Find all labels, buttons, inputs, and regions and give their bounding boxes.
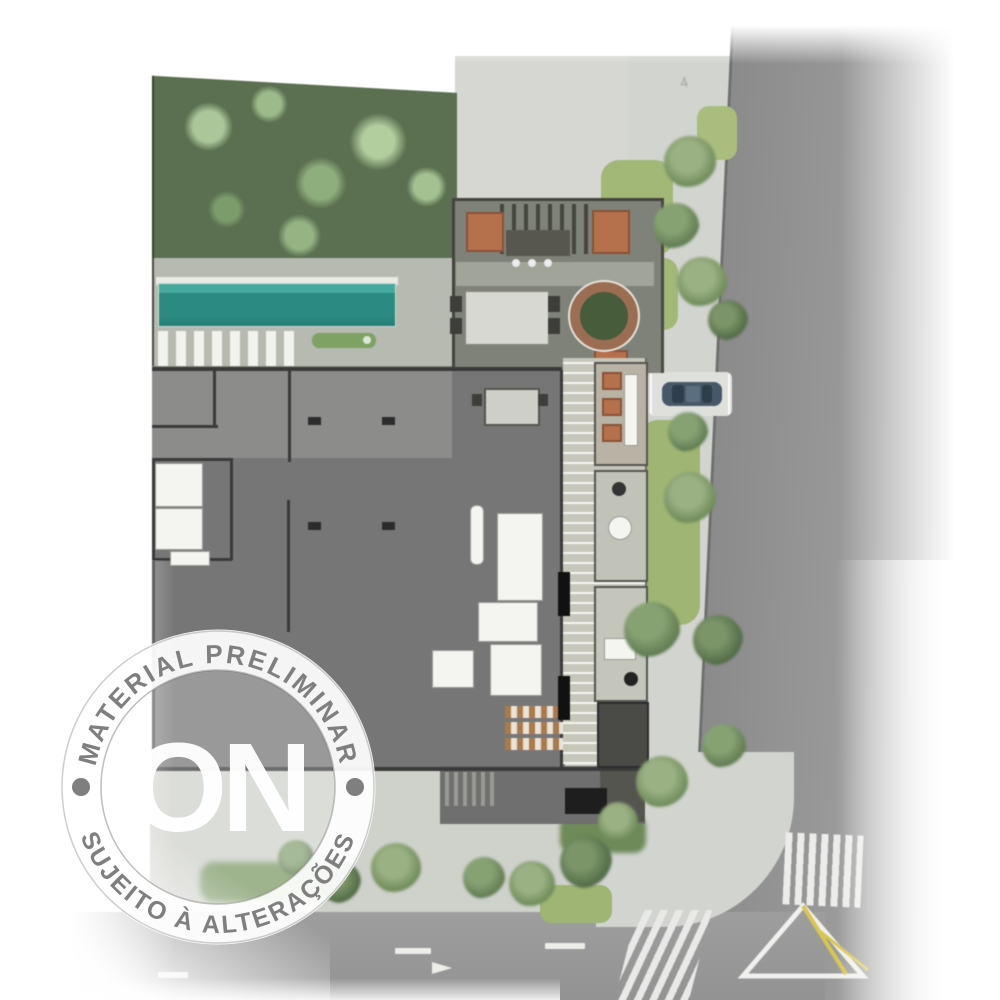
white-fixture: [155, 463, 203, 507]
car-windshield: [672, 385, 684, 403]
street-tree: [560, 836, 612, 888]
street-tree: [371, 843, 421, 893]
parking-line: [728, 374, 730, 414]
lounge-chair: [466, 212, 504, 252]
module-seat: [624, 672, 638, 686]
street-tree: [624, 602, 680, 658]
lounge-module: [594, 470, 648, 582]
white-fixture: [170, 551, 210, 566]
street-tree: [668, 412, 708, 452]
lounge-chair: [592, 210, 630, 254]
street-tree: [653, 203, 699, 249]
dining-chair: [450, 318, 462, 334]
street-tree: [463, 857, 505, 899]
parking-line: [650, 374, 652, 414]
street-tree: [664, 472, 716, 524]
interior-wall: [152, 458, 232, 461]
bar-stool: [528, 259, 536, 267]
street-tree: [702, 724, 746, 768]
parked-car: [662, 382, 722, 406]
street-tree: [664, 136, 716, 188]
sun-loungers: [158, 331, 300, 368]
lane-arrow: [432, 962, 452, 974]
white-fade-overlay: [0, 978, 560, 1000]
annex-stairs: [445, 772, 497, 806]
boardwalk-bench: [558, 572, 570, 616]
car-rear-window: [702, 385, 712, 403]
bar-stool: [512, 259, 520, 267]
white-fixture: [432, 650, 474, 688]
round-planter: [570, 282, 638, 350]
dining-chair: [450, 296, 462, 312]
bar-stool: [544, 259, 552, 267]
stamp-dot: [346, 778, 364, 796]
module-counter: [624, 374, 638, 446]
interior-wall: [288, 370, 291, 462]
grill: [602, 398, 622, 416]
garden-area: [152, 72, 457, 262]
interior-chair: [472, 394, 482, 406]
watermark-stamp: MATERIAL PRELIMINAR SUJEITO À ALTERAÇÕES…: [58, 627, 378, 947]
interior-wall: [230, 458, 233, 560]
interior-wall: [287, 500, 290, 632]
white-fixture: [478, 602, 538, 642]
structural-column: [382, 522, 395, 530]
white-fade-overlay: [780, 560, 1000, 1000]
outdoor-dining-table: [464, 290, 550, 346]
interior-chair: [538, 394, 548, 406]
module-seat: [612, 482, 626, 496]
module-table: [608, 516, 632, 540]
bench-end-dot: [363, 336, 371, 344]
white-fixture: [497, 513, 543, 601]
grill: [602, 424, 622, 442]
lane-dash: [545, 943, 585, 949]
dining-chair: [548, 318, 560, 334]
stamp-dot: [72, 778, 90, 796]
street-tree: [509, 861, 555, 907]
structural-column: [308, 522, 321, 530]
terrace-path: [456, 262, 654, 286]
street-tree: [636, 756, 688, 808]
street-tree: [598, 802, 638, 842]
street-tree: [708, 300, 748, 340]
dining-chair: [548, 296, 560, 312]
swimming-pool: [158, 283, 396, 327]
lane-dash: [395, 948, 431, 954]
white-fixture: [155, 508, 203, 550]
service-cabin: [597, 702, 649, 768]
interior-table: [484, 388, 540, 426]
boardwalk-bench: [558, 676, 570, 720]
structural-column: [308, 417, 321, 425]
street-tree: [693, 615, 743, 665]
building-room-zone: [152, 370, 452, 458]
car-roof: [686, 386, 700, 402]
barbecue-module: [594, 362, 648, 466]
bar-counter: [506, 230, 570, 256]
site-plan-image: 4 MATERIAL PRELIMINAR SUJEITO À ALTERAÇÕ…: [0, 0, 1000, 1000]
structural-column: [382, 417, 395, 425]
interior-wall: [152, 425, 218, 428]
white-fixture: [490, 644, 542, 696]
interior-wall: [213, 370, 216, 427]
stamp-logo: ON: [130, 717, 307, 858]
grill: [602, 372, 622, 390]
white-fixture: [470, 505, 484, 565]
street-tree: [677, 257, 727, 307]
